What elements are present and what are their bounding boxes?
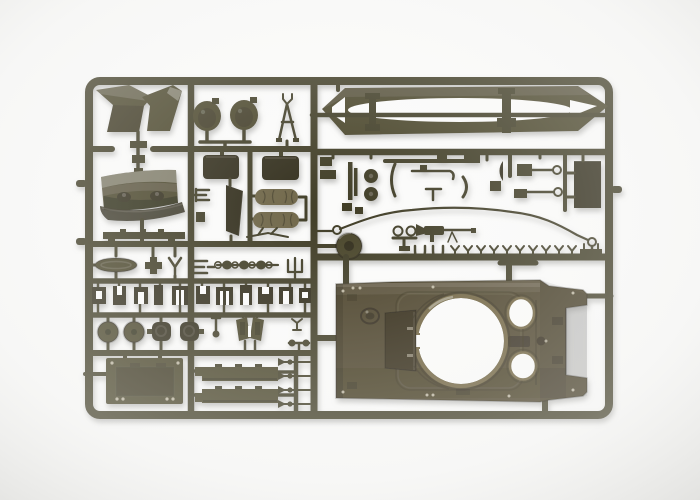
photo-stage [0,0,700,500]
sprue-photo [0,0,700,500]
vignette-overlay [0,0,700,500]
